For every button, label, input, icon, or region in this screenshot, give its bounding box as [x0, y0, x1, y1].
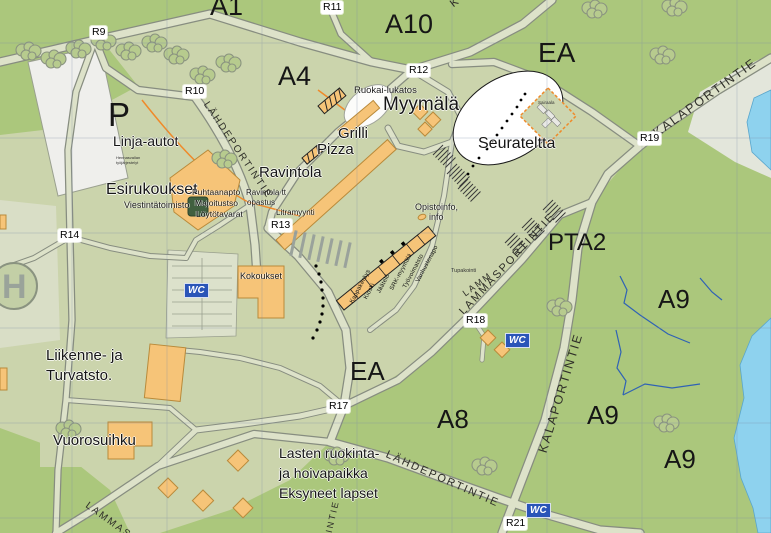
small-label-majoitustso: Majoitustso — [195, 199, 238, 208]
map-canvas: H — [0, 0, 771, 533]
area-label-a4: A4 — [278, 62, 311, 90]
road-marker-r14: R14 — [58, 229, 81, 242]
road-marker-r10: R10 — [183, 85, 206, 98]
place-label-vuorosuihku: Vuorosuihku — [53, 433, 136, 449]
road-name-lammasportintie: LAMMASPORTINTIE — [458, 211, 558, 318]
road-name-l-hdeportintie: LÄHDEPORTINTIE — [201, 100, 274, 201]
area-label-a9: A9 — [587, 402, 619, 429]
place-label-myym-l: Myymälä — [383, 95, 459, 115]
wc-sign-3: WC — [526, 503, 551, 518]
area-label-a9: A9 — [664, 446, 696, 473]
small-label-opastus: opastus — [247, 199, 275, 207]
area-label-ea: EA — [350, 358, 385, 385]
area-label-pta2: PTA2 — [548, 230, 606, 255]
tiny-label-sairaala: Sairaala — [538, 101, 555, 106]
road-marker-r13: R13 — [269, 219, 292, 232]
place-label-ravintola: Ravintola — [259, 165, 322, 181]
small-label-puhtaanapto: Puhtaanapto — [192, 188, 240, 197]
place-label-ja-hoivapaikka: ja hoivapaikka — [279, 466, 368, 481]
road-marker-r9: R9 — [90, 26, 107, 39]
area-label-ea: EA — [538, 38, 575, 67]
area-label-a8: A8 — [437, 406, 469, 433]
place-label-lasten-ruokinta: Lasten ruokinta- — [279, 446, 379, 461]
area-label-p: P — [108, 98, 130, 133]
road-name-kalaportintie: KALAPORTINTIE — [651, 56, 759, 140]
road-name-k: K — [448, 0, 462, 10]
area-label-a9: A9 — [658, 286, 690, 313]
road-marker-r17: R17 — [327, 400, 350, 413]
road-marker-r18: R18 — [464, 314, 487, 327]
place-label-turvatsto: Turvatsto. — [46, 368, 112, 384]
area-label-a1: A1 — [210, 0, 243, 20]
vendor-label-kioski: Kioski — [363, 282, 377, 300]
road-name-lammasportintie: LAMMASPORTINTIE — [83, 501, 191, 533]
small-label-litramyynti: Litramyynti — [276, 209, 315, 217]
place-label-pizza: Pizza — [317, 142, 354, 158]
tiny-label-ty-j-rjestelyt: työjärjestelyt — [116, 161, 138, 165]
road-marker-r21: R21 — [504, 517, 527, 530]
vendor-label-j-tel: Jäätelö — [376, 273, 391, 294]
place-label-esirukoukset: Esirukoukset — [106, 182, 198, 199]
place-label-grilli: Grilli — [338, 126, 368, 142]
area-label-a10: A10 — [385, 10, 433, 38]
small-label-info: info — [429, 213, 444, 222]
small-label-viestint-toimisto: Viestintätoimisto — [124, 201, 189, 210]
wc-sign-2: WC — [505, 333, 530, 348]
road-marker-r11: R11 — [321, 1, 343, 14]
small-label-ruokai-lukatos: Ruokai-lukatos — [354, 86, 417, 96]
place-label-linja-autot: Linja-autot — [113, 134, 178, 149]
place-label-eksyneet-lapset: Eksyneet lapset — [279, 486, 378, 501]
place-label-liikenne-ja: Liikenne- ja — [46, 348, 123, 364]
tiny-label-tupakointi: Tupakointi — [451, 269, 476, 275]
road-name-portintie: PORTINTIE — [317, 500, 341, 533]
road-name-kalaportintie: KALAPORTINTIE — [537, 332, 586, 455]
road-marker-r19: R19 — [638, 132, 661, 145]
road-marker-r12: R12 — [407, 64, 430, 77]
map-labels-layer: A1A10A4EAPEAPTA2A8A9A9A9Linja-autotEsiru… — [0, 0, 771, 533]
road-name-l-hdeportintie: LÄHDEPORTINTIE — [384, 449, 501, 510]
wc-sign-1: WC — [184, 283, 209, 298]
place-label-seurateltta: Seurateltta — [478, 136, 555, 153]
small-label-kokoukset: Kokoukset — [240, 272, 282, 281]
small-label-l-yt-tavarat: Löytötavarat — [196, 210, 243, 219]
